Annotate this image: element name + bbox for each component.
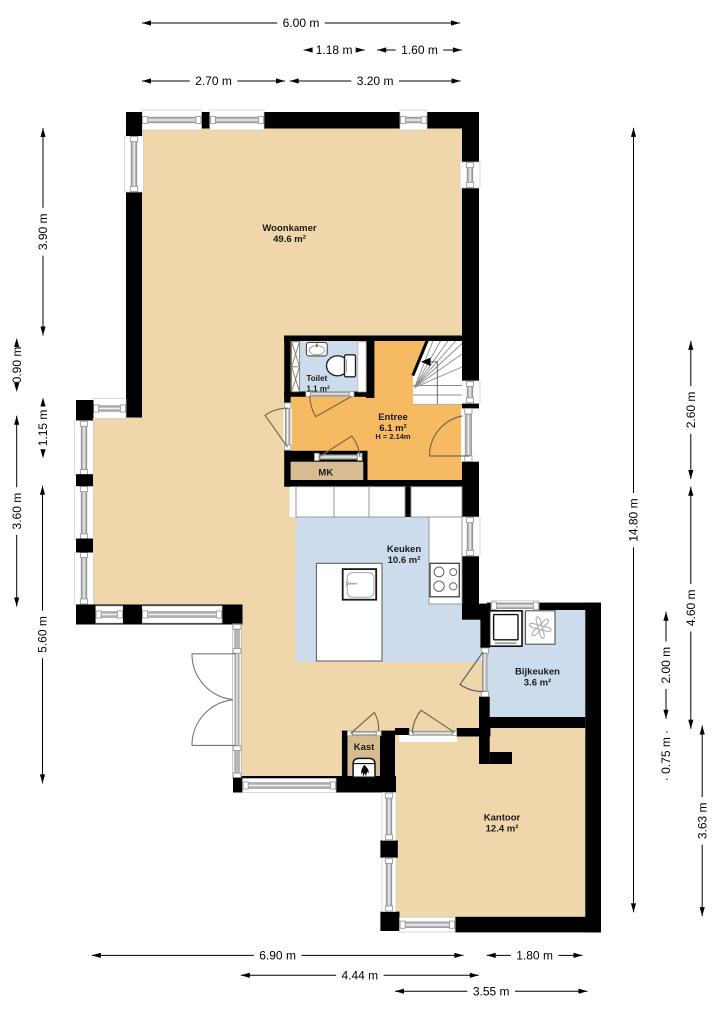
svg-text:4.44 m: 4.44 m [341, 968, 378, 982]
svg-text:1.80 m: 1.80 m [516, 949, 553, 963]
svg-text:2.60 m: 2.60 m [684, 392, 698, 429]
svg-text:MK: MK [318, 468, 333, 479]
svg-text:6.00 m: 6.00 m [283, 16, 320, 30]
svg-text:1.60 m: 1.60 m [401, 43, 438, 57]
svg-text:Keuken: Keuken [387, 544, 422, 555]
svg-text:10.6 m²: 10.6 m² [388, 555, 421, 566]
svg-text:2.00 m: 2.00 m [659, 647, 673, 684]
svg-text:49.6 m²: 49.6 m² [273, 234, 306, 245]
svg-text:Kast: Kast [354, 742, 375, 753]
svg-text:2.70 m: 2.70 m [195, 74, 232, 88]
svg-text:- 1.15 m -: - 1.15 m - [36, 402, 50, 453]
svg-text:· 0.75 m ·: · 0.75 m · [659, 730, 673, 781]
svg-text:Woonkamer: Woonkamer [262, 223, 317, 234]
svg-text:3.55 m: 3.55 m [473, 984, 510, 998]
svg-text:12.4 m²: 12.4 m² [486, 823, 519, 834]
svg-text:4.60 m: 4.60 m [684, 589, 698, 626]
svg-text:1.1 m²: 1.1 m² [307, 385, 330, 394]
svg-text:1.18 m: 1.18 m [316, 43, 353, 57]
svg-text:3.20 m: 3.20 m [357, 74, 394, 88]
svg-text:H = 2.14m: H = 2.14m [375, 432, 411, 441]
svg-text:6.90 m: 6.90 m [259, 949, 296, 963]
svg-text:3.6 m²: 3.6 m² [524, 677, 551, 688]
svg-text:0.90 m: 0.90 m [10, 347, 24, 384]
svg-text:5.60 m: 5.60 m [36, 616, 50, 653]
svg-text:Toilet: Toilet [307, 374, 328, 383]
svg-text:Entree: Entree [378, 412, 408, 423]
svg-text:3.90 m: 3.90 m [36, 213, 50, 250]
svg-text:3.63 m: 3.63 m [695, 802, 709, 839]
svg-text:3.60 m: 3.60 m [10, 493, 24, 530]
svg-text:Bijkeuken: Bijkeuken [515, 667, 560, 678]
svg-text:14.80 m: 14.80 m [627, 498, 641, 541]
svg-text:Kantoor: Kantoor [484, 813, 521, 824]
